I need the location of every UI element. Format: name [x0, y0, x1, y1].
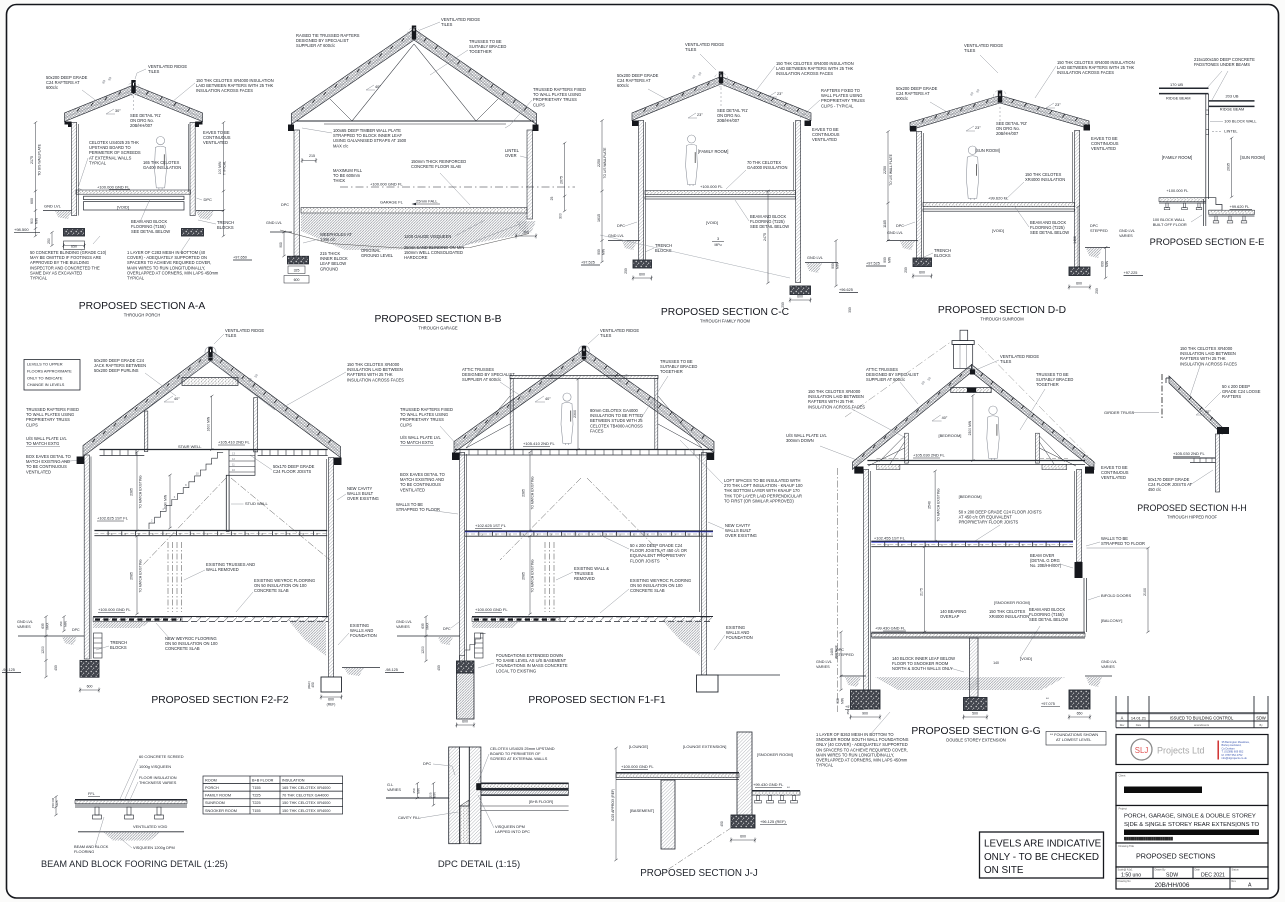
svg-text:[BEDROOM]: [BEDROOM]	[959, 494, 982, 499]
svg-text:+100.000 GND FL: +100.000 GND FL	[97, 184, 130, 189]
svg-text:1200: 1200	[41, 646, 45, 654]
svg-text:PROPOSED SECTION B-B: PROPOSED SECTION B-B	[374, 314, 501, 325]
svg-text:[FAMILY ROOM]: [FAMILY ROOM]	[1162, 155, 1192, 160]
svg-text:MAX: MAX	[46, 622, 50, 630]
svg-text:ROOM: ROOM	[205, 778, 217, 782]
svg-text:BLOCKS: BLOCKS	[934, 253, 951, 258]
svg-text:50x200 DEEP PURLINS: 50x200 DEEP PURLINS	[94, 368, 139, 373]
svg-text:Rev: Rev	[1120, 723, 1125, 727]
svg-text:REMOVED: REMOVED	[574, 576, 595, 581]
svg-text:GND LVL: GND LVL	[816, 660, 832, 664]
svg-text:20B/HH/007: 20B/HH/007	[130, 123, 153, 128]
svg-text:600: 600	[328, 698, 334, 702]
svg-text:BEAM AND BLOCK FOORING DETAIL: BEAM AND BLOCK FOORING DETAIL (1:25)	[41, 859, 228, 869]
svg-text:900: 900	[279, 242, 283, 248]
svg-text:600: 600	[797, 295, 803, 299]
svg-text:x: x	[166, 532, 168, 536]
svg-text:650: 650	[71, 244, 77, 248]
svg-text:2475: 2475	[763, 233, 767, 241]
svg-text:x: x	[928, 543, 930, 547]
svg-text:XR4000 INSULATION: XR4000 INSULATION	[1025, 177, 1065, 182]
svg-text:PROPOSED SECTION E-E: PROPOSED SECTION E-E	[1150, 237, 1265, 247]
svg-text:+105.030 2ND FL: +105.030 2ND FL	[913, 453, 945, 458]
svg-text:x: x	[111, 532, 113, 536]
svg-text:+100.000 GND FL: +100.000 GND FL	[370, 182, 403, 187]
svg-text:450: 450	[311, 682, 315, 688]
svg-text:TILES: TILES	[685, 47, 697, 52]
svg-text:MIN: MIN	[35, 217, 39, 224]
svg-text:900: 900	[836, 698, 840, 704]
svg-text:GROUND: GROUND	[320, 266, 338, 271]
svg-text:Client: Client	[1119, 774, 1126, 778]
svg-text:2100: 2100	[1143, 588, 1147, 596]
svg-text:250: 250	[47, 238, 51, 244]
svg-text:SLJ: SLJ	[1135, 746, 1149, 755]
svg-text:x: x	[1049, 543, 1051, 547]
svg-text:WALL REMOVED: WALL REMOVED	[206, 567, 239, 572]
svg-text:OVER: OVER	[505, 153, 517, 158]
svg-text:Date: Date	[1195, 869, 1201, 872]
svg-text:TILES: TILES	[1000, 359, 1012, 364]
svg-text:20B/HH/006: 20B/HH/006	[1155, 882, 1190, 889]
svg-text:TOGETHER: TOGETHER	[660, 369, 683, 374]
svg-text:600c/c: 600c/c	[896, 96, 908, 101]
svg-text:x: x	[605, 532, 607, 536]
svg-text:+100.000 GND FL: +100.000 GND FL	[621, 764, 654, 769]
svg-text:40°: 40°	[375, 85, 381, 89]
svg-text:PROPOSED SECTIONS: PROPOSED SECTIONS	[1136, 852, 1216, 861]
svg-text:FFL: FFL	[88, 792, 95, 796]
svg-text:[FAMILY ROOM]: [FAMILY ROOM]	[698, 149, 728, 154]
svg-text:x: x	[220, 532, 222, 536]
svg-text:14.01.21: 14.01.21	[1131, 715, 1146, 720]
svg-text:INSULATION ACROSS FACES: INSULATION ACROSS FACES	[776, 71, 833, 76]
svg-text:INSULATION ACROSS FACES: INSULATION ACROSS FACES	[1057, 70, 1114, 75]
svg-text:23°: 23°	[1055, 103, 1061, 107]
svg-text:600: 600	[1100, 261, 1104, 267]
svg-text:VENTILATED VOID: VENTILATED VOID	[133, 824, 167, 829]
svg-text:1000g VISQUEEN: 1000g VISQUEEN	[139, 764, 171, 769]
svg-text:+99.430 GND FL: +99.430 GND FL	[875, 626, 906, 631]
svg-text:MAX: MAX	[426, 622, 430, 630]
svg-text:2175: 2175	[919, 588, 923, 596]
svg-text:SUNROOM: SUNROOM	[205, 801, 225, 805]
svg-text:RIDGE BEAM: RIDGE BEAM	[1166, 96, 1190, 101]
svg-text:CONCRETE SLAB: CONCRETE SLAB	[630, 588, 665, 593]
svg-text:23°: 23°	[697, 113, 703, 117]
svg-text:150 THK CELOTEX XR4000: 150 THK CELOTEX XR4000	[282, 801, 330, 805]
svg-text:VENTILATED: VENTILATED	[400, 487, 425, 492]
svg-text:STRAPPED TO FLOOR: STRAPPED TO FLOOR	[1101, 541, 1145, 546]
svg-text:500: 500	[972, 712, 978, 716]
svg-text:RAFTERS: RAFTERS	[1222, 394, 1241, 399]
svg-text:2250: 2250	[883, 166, 887, 174]
svg-text:SEE DETAIL BELOW: SEE DETAIL BELOW	[131, 229, 170, 234]
svg-text:B+B FLOOR: B+B FLOOR	[252, 778, 274, 782]
svg-text:635: 635	[421, 623, 425, 629]
svg-text:Drawing Title: Drawing Title	[1119, 844, 1135, 848]
svg-text:[VOID]: [VOID]	[706, 220, 718, 225]
svg-text:BLOCKS: BLOCKS	[217, 225, 234, 230]
svg-text:LOCAL TO EXISTING: LOCAL TO EXISTING	[496, 668, 536, 673]
svg-text:PROPOSED SECTION J-J: PROPOSED SECTION J-J	[640, 868, 758, 879]
svg-text:2175: 2175	[30, 156, 34, 164]
svg-text:+105.030 2ND FL: +105.030 2ND FL	[1173, 451, 1205, 456]
svg-text:VENTILATED: VENTILATED	[812, 137, 837, 142]
svg-text:x: x	[124, 532, 126, 536]
svg-text:LINTEL: LINTEL	[1224, 129, 1238, 134]
svg-text:VISQUEEN 1200g DPM: VISQUEEN 1200g DPM	[133, 845, 175, 850]
svg-text:x: x	[661, 532, 663, 536]
svg-text:150: 150	[59, 621, 63, 626]
svg-text:STRAPPED TO FLOOR: STRAPPED TO FLOOR	[396, 507, 440, 512]
svg-text:x: x	[941, 543, 943, 547]
svg-text:RIDGE BEAM: RIDGE BEAM	[1220, 107, 1244, 112]
svg-text:TILES: TILES	[441, 22, 453, 27]
svg-text:CLIPS - TYPICAL: CLIPS - TYPICAL	[821, 103, 854, 108]
svg-text:1200: 1200	[421, 646, 425, 654]
svg-text:GND LVL: GND LVL	[266, 221, 282, 225]
svg-text:(REF): (REF)	[307, 681, 311, 689]
svg-text:[SNOOKER ROOM]: [SNOOKER ROOM]	[994, 600, 1030, 605]
svg-text:x: x	[901, 543, 903, 547]
svg-text:(REF): (REF)	[327, 702, 336, 706]
svg-text:900: 900	[597, 249, 601, 255]
svg-text:TOGETHER: TOGETHER	[469, 49, 492, 54]
svg-text:600: 600	[294, 278, 300, 282]
svg-text:[VOID]: [VOID]	[1020, 656, 1032, 661]
svg-text:T225: T225	[252, 794, 261, 798]
svg-text:2300 MIN: 2300 MIN	[968, 420, 972, 435]
svg-text:TYPICAL: TYPICAL	[223, 161, 227, 175]
svg-text:[BASEMENT]: [BASEMENT]	[630, 808, 654, 813]
svg-text:XR4000 INSULATION: XR4000 INSULATION	[989, 614, 1029, 619]
svg-text:CAVITY FILL: CAVITY FILL	[398, 815, 421, 820]
svg-text:PROPOSED SECTION A-A: PROPOSED SECTION A-A	[79, 301, 206, 312]
svg-text:PROPOSED SECTION H-H: PROPOSED SECTION H-H	[1137, 503, 1246, 513]
svg-text:x: x	[619, 532, 621, 536]
svg-text:SNOOKER ROOM: SNOOKER ROOM	[205, 809, 237, 813]
svg-text:MIN: MIN	[1105, 260, 1109, 267]
svg-text:DPC: DPC	[617, 224, 625, 228]
svg-text:600: 600	[639, 273, 645, 277]
svg-text:1.8m c/c: 1.8m c/c	[320, 237, 335, 242]
svg-text:Rev: Rev	[1232, 880, 1237, 883]
svg-text:x: x	[674, 532, 676, 536]
svg-text:x: x	[207, 532, 209, 536]
svg-text:S|DE & S|NGLE STOREY REAR EXTE: S|DE & S|NGLE STOREY REAR EXTENS|ONS TO	[1124, 822, 1260, 828]
svg-text:900: 900	[831, 263, 835, 269]
svg-text:325: 325	[294, 269, 300, 273]
svg-text:VARIES: VARIES	[17, 625, 31, 629]
svg-text:SUPPLIER AT 600c/c: SUPPLIER AT 600c/c	[462, 377, 501, 382]
svg-text:DEC 2021: DEC 2021	[1201, 873, 1225, 879]
svg-text:PROPOSED SECTION D-D: PROPOSED SECTION D-D	[938, 305, 1066, 316]
svg-text:x: x	[275, 532, 277, 536]
svg-text:TO U/S WALLPLATE: TO U/S WALLPLATE	[603, 147, 607, 179]
svg-text:CHANGE IN LEVELS: CHANGE IN LEVELS	[27, 382, 65, 387]
svg-text:[B+B FLOOR]: [B+B FLOOR]	[529, 799, 553, 804]
svg-text:MIN: MIN	[433, 792, 437, 798]
svg-text:+97.075: +97.075	[845, 705, 859, 709]
svg-text:BIFOLD DOORS: BIFOLD DOORS	[1101, 593, 1132, 598]
svg-text:250: 250	[624, 268, 628, 274]
svg-text:300: 300	[559, 213, 563, 219]
svg-text:+99.620 FL: +99.620 FL	[1230, 204, 1251, 209]
svg-text:DPC: DPC	[72, 628, 80, 632]
svg-text:Drawing No: Drawing No	[1118, 880, 1132, 883]
svg-text:LAPPED INTO DPC: LAPPED INTO DPC	[495, 829, 530, 834]
svg-text:+96.125 (REF): +96.125 (REF)	[760, 819, 786, 824]
svg-text:+105.410 2ND FL: +105.410 2ND FL	[523, 441, 555, 446]
svg-text:[SUN ROOM]: [SUN ROOM]	[1240, 155, 1265, 160]
svg-text:GND LVL: GND LVL	[1119, 229, 1135, 233]
svg-text:TYPICAL: TYPICAL	[30, 276, 48, 281]
svg-text:3: 3	[717, 237, 719, 241]
svg-text:2035: 2035	[1226, 163, 1230, 171]
svg-text:LEVELS ARE INDICATIVE: LEVELS ARE INDICATIVE	[984, 839, 1102, 850]
svg-text:x: x	[289, 532, 291, 536]
svg-text:2540: 2540	[928, 501, 932, 509]
svg-text:x: x	[592, 532, 594, 536]
svg-text:GND LVL: GND LVL	[807, 256, 823, 260]
svg-text:AT LOWEST LEVEL: AT LOWEST LEVEL	[1056, 737, 1092, 742]
svg-text:3025 APPROX (REF): 3025 APPROX (REF)	[611, 789, 615, 821]
svg-text:40°: 40°	[942, 416, 948, 420]
svg-text:635: 635	[41, 623, 45, 629]
svg-text:GARAGE FL: GARAGE FL	[380, 200, 404, 205]
svg-text:1615: 1615	[597, 214, 601, 222]
svg-text:215: 215	[309, 154, 315, 158]
svg-text:900: 900	[30, 218, 34, 224]
svg-text:x: x	[481, 532, 483, 536]
svg-text:PROPOSED SECTION G-G: PROPOSED SECTION G-G	[911, 726, 1040, 737]
svg-text:TILES: TILES	[600, 333, 612, 338]
svg-text:+102.455 1ST FL: +102.455 1ST FL	[874, 536, 906, 541]
svg-text:INSULATION ACROSS FACES: INSULATION ACROSS FACES	[196, 88, 253, 93]
svg-text:LEVELS TO UPPER: LEVELS TO UPPER	[27, 362, 63, 367]
svg-text:DPC: DPC	[443, 627, 451, 631]
svg-text:x: x	[495, 532, 497, 536]
svg-text:MIN: MIN	[64, 621, 68, 627]
svg-text:450: 450	[720, 821, 724, 827]
svg-text:x: x	[688, 532, 690, 536]
svg-text:+99.620 FL: +99.620 FL	[988, 196, 1009, 201]
svg-text:FLOORS APPROXIMATE: FLOORS APPROXIMATE	[27, 368, 72, 373]
svg-text:900: 900	[862, 712, 868, 716]
svg-text:VARIES: VARIES	[387, 787, 401, 792]
svg-text:600c/c: 600c/c	[46, 85, 58, 90]
svg-text:TILES: TILES	[225, 333, 237, 338]
svg-text:Projects Ltd: Projects Ltd	[1157, 746, 1205, 756]
svg-text:HARDCORE: HARDCORE	[404, 255, 428, 260]
svg-text:TILES: TILES	[148, 69, 160, 74]
svg-text:[SNOOKER ROOM]: [SNOOKER ROOM]	[757, 752, 793, 757]
svg-text:CONCRETE FLOOR SLAB: CONCRETE FLOOR SLAB	[411, 164, 461, 169]
svg-text:23°: 23°	[975, 126, 981, 130]
svg-text:DPC: DPC	[423, 761, 431, 766]
svg-text:2985: 2985	[129, 572, 133, 580]
svg-text:450: 450	[54, 665, 58, 671]
svg-text:Date: Date	[1136, 723, 1142, 727]
svg-text:███████████████████████: ███████████████████████	[1124, 837, 1174, 841]
svg-text:140: 140	[993, 661, 999, 665]
svg-text:x: x	[152, 532, 154, 536]
svg-text:x: x	[302, 532, 304, 536]
svg-text:VARIES: VARIES	[816, 665, 830, 669]
svg-text:GROUND LEVEL: GROUND LEVEL	[361, 253, 394, 258]
svg-text:STEPPED: STEPPED	[1090, 229, 1108, 233]
svg-text:2300: 2300	[573, 410, 577, 418]
svg-text:+98.500: +98.500	[14, 227, 29, 232]
svg-text:ONLY TO INDICATE: ONLY TO INDICATE	[27, 375, 63, 380]
svg-text:SDW: SDW	[1166, 873, 1178, 879]
svg-text:THROUGH PORCH: THROUGH PORCH	[124, 313, 161, 318]
svg-text:2.0m MIN: 2.0m MIN	[164, 494, 168, 509]
svg-text:x: x	[1035, 543, 1037, 547]
svg-text:SEE DETAIL BELOW: SEE DETAIL BELOW	[1030, 230, 1069, 235]
svg-text:x: x	[702, 532, 704, 536]
svg-text:DPC DETAIL (1:15): DPC DETAIL (1:15)	[438, 859, 520, 870]
svg-text:T155: T155	[252, 809, 261, 813]
svg-text:203 UB: 203 UB	[1226, 94, 1239, 99]
svg-text:x: x	[193, 532, 195, 536]
svg-text:GIRDER TRUSS: GIRDER TRUSS	[1104, 410, 1134, 415]
svg-text:1466: 1466	[1073, 236, 1077, 244]
svg-text:x: x	[955, 543, 957, 547]
svg-text:23°: 23°	[777, 92, 783, 96]
svg-text:MIN: MIN	[417, 788, 421, 794]
svg-text:GND LVL: GND LVL	[887, 231, 903, 235]
svg-text:PROPOSED SECTION F1-F1: PROPOSED SECTION F1-F1	[528, 695, 666, 706]
svg-text:x: x	[578, 532, 580, 536]
svg-text:THROUGH FAMILY ROOM: THROUGH FAMILY ROOM	[700, 319, 750, 324]
svg-text:20B/HH/007: 20B/HH/007	[717, 118, 740, 123]
svg-text:170 UB: 170 UB	[1170, 82, 1183, 87]
svg-text:GND LVL: GND LVL	[396, 620, 412, 624]
svg-text:300mm DOWN: 300mm DOWN	[786, 438, 814, 443]
svg-text:x: x	[982, 543, 984, 547]
svg-text:350: 350	[848, 307, 852, 313]
svg-text:ON SITE: ON SITE	[984, 865, 1024, 876]
svg-text:FOUNDATION: FOUNDATION	[726, 635, 753, 640]
svg-text:FAMILY ROOM: FAMILY ROOM	[205, 794, 231, 798]
svg-text:PORCH: PORCH	[205, 786, 219, 790]
svg-text:TO MATCH EXISTING: TO MATCH EXISTING	[531, 476, 535, 510]
svg-text:STUD WALL: STUD WALL	[245, 501, 269, 506]
svg-text:Status: Status	[1232, 869, 1240, 872]
svg-text:amendments: amendments	[1194, 723, 1210, 727]
svg-text:MAX c/c: MAX c/c	[333, 143, 348, 148]
svg-text:+105.410 2ND FL: +105.410 2ND FL	[218, 440, 250, 445]
svg-text:THICKNESS VARIES: THICKNESS VARIES	[139, 780, 177, 785]
svg-text:2075: 2075	[559, 176, 563, 184]
svg-text:+102.625 1ST FL: +102.625 1ST FL	[475, 523, 507, 528]
svg-text:x: x	[914, 543, 916, 547]
svg-text:info@sljprojects.co.uk: info@sljprojects.co.uk	[1222, 756, 1248, 760]
svg-text:x: x	[509, 532, 511, 536]
svg-text:x: x	[1008, 543, 1010, 547]
svg-text:TO MATCH EXISTING: TO MATCH EXISTING	[139, 559, 143, 593]
svg-text:T225: T225	[252, 801, 261, 805]
svg-text:TO MATCH EXISTING: TO MATCH EXISTING	[937, 488, 941, 522]
svg-text:GND LVL: GND LVL	[44, 204, 62, 209]
svg-text:CONCRETE SLAB: CONCRETE SLAB	[165, 646, 200, 651]
svg-text:60 CONCRETE SCREED: 60 CONCRETE SCREED	[139, 754, 184, 759]
svg-text:40°: 40°	[1205, 410, 1211, 414]
svg-text:150 THK CELOTEX XR4000: 150 THK CELOTEX XR4000	[282, 809, 330, 813]
svg-text:SUPPLIER AT 600c/c: SUPPLIER AT 600c/c	[866, 377, 905, 382]
svg-text:250: 250	[1095, 288, 1099, 294]
svg-text:DPC: DPC	[204, 197, 213, 202]
svg-text:THROUGH SUNROOM: THROUGH SUNROOM	[980, 317, 1024, 322]
svg-text:TO U/S WALLPLATE: TO U/S WALLPLATE	[38, 143, 42, 176]
svg-text:1200 GAUGE VISQUEEN: 1200 GAUGE VISQUEEN	[404, 234, 451, 239]
svg-text:VARIES: VARIES	[1101, 665, 1115, 669]
svg-text:70 THK CELOTEX GA4000: 70 THK CELOTEX GA4000	[282, 794, 329, 798]
svg-text:450: 450	[437, 665, 441, 671]
svg-text:TO MATCH EXTG: TO MATCH EXTG	[400, 440, 433, 445]
svg-text:+97.225: +97.225	[1124, 271, 1138, 275]
svg-text:x: x	[968, 543, 970, 547]
svg-text:25mm FALL: 25mm FALL	[416, 199, 438, 204]
svg-text:VENTILATED: VENTILATED	[1101, 475, 1126, 480]
svg-text:TYPICAL: TYPICAL	[816, 763, 834, 768]
svg-text:[LOUNGE EXTENSION]: [LOUNGE EXTENSION]	[683, 744, 726, 749]
svg-text:+97.525: +97.525	[581, 261, 595, 265]
svg-text:x: x	[1062, 543, 1064, 547]
svg-text:SDW: SDW	[1256, 715, 1266, 720]
svg-text:[BEDROOM]: [BEDROOM]	[939, 433, 962, 438]
svg-text:PORCH, GARAGE, SINGLE & DOUBL: PORCH, GARAGE, SINGLE & DOUBLE STOREY	[1124, 814, 1256, 820]
svg-text:SEE DETAIL BELOW: SEE DETAIL BELOW	[1029, 617, 1068, 622]
svg-text:[VOID]: [VOID]	[992, 228, 1004, 233]
svg-text:450: 450	[846, 709, 850, 714]
svg-text:TO U/S WALL PLATE: TO U/S WALL PLATE	[889, 153, 893, 185]
svg-text:MIN: MIN	[602, 248, 606, 255]
svg-text:[LOUNGE]: [LOUNGE]	[629, 744, 648, 749]
svg-text:2385: 2385	[129, 488, 133, 496]
svg-text:VARIES: VARIES	[396, 625, 410, 629]
svg-text:600: 600	[87, 685, 93, 689]
svg-text:+96.625: +96.625	[839, 288, 853, 292]
svg-text:Drawn By: Drawn By	[1155, 869, 1167, 872]
svg-text:FOUNDATION: FOUNDATION	[350, 633, 377, 638]
svg-text:BUILT OFF FLOOR: BUILT OFF FLOOR	[1153, 222, 1187, 227]
svg-text:VENTILATED: VENTILATED	[203, 140, 228, 145]
svg-text:[BALCONY]: [BALCONY]	[1101, 618, 1122, 623]
svg-text:[VOID]: [VOID]	[117, 204, 129, 209]
svg-text:+100.000 FL: +100.000 FL	[1166, 188, 1189, 193]
svg-text:OVERLAP: OVERLAP	[940, 614, 960, 619]
svg-text:VENTILATED: VENTILATED	[1091, 146, 1116, 151]
svg-text:SUPPLIER AT 600c/c: SUPPLIER AT 600c/c	[296, 43, 335, 48]
svg-text:VENTILATED: VENTILATED	[26, 469, 51, 474]
svg-text:250: 250	[904, 267, 908, 273]
svg-text:STAIR WELL: STAIR WELL	[178, 444, 202, 449]
svg-text:BLOCKS: BLOCKS	[110, 645, 127, 650]
svg-text:FLOOR JOISTS: FLOOR JOISTS	[630, 558, 660, 563]
svg-text:NORTH & SOUTH WALLS ONLY: NORTH & SOUTH WALLS ONLY	[892, 666, 953, 671]
svg-text:TYPICAL: TYPICAL	[127, 276, 145, 281]
svg-text:600c/c: 600c/c	[617, 83, 629, 88]
svg-text:x: x	[550, 532, 552, 536]
svg-text:MPu: MPu	[715, 243, 722, 247]
svg-text:225: 225	[55, 800, 59, 805]
svg-text:MIN: MIN	[888, 256, 892, 263]
svg-text:x: x	[995, 543, 997, 547]
svg-text:MIN: MIN	[836, 262, 840, 269]
